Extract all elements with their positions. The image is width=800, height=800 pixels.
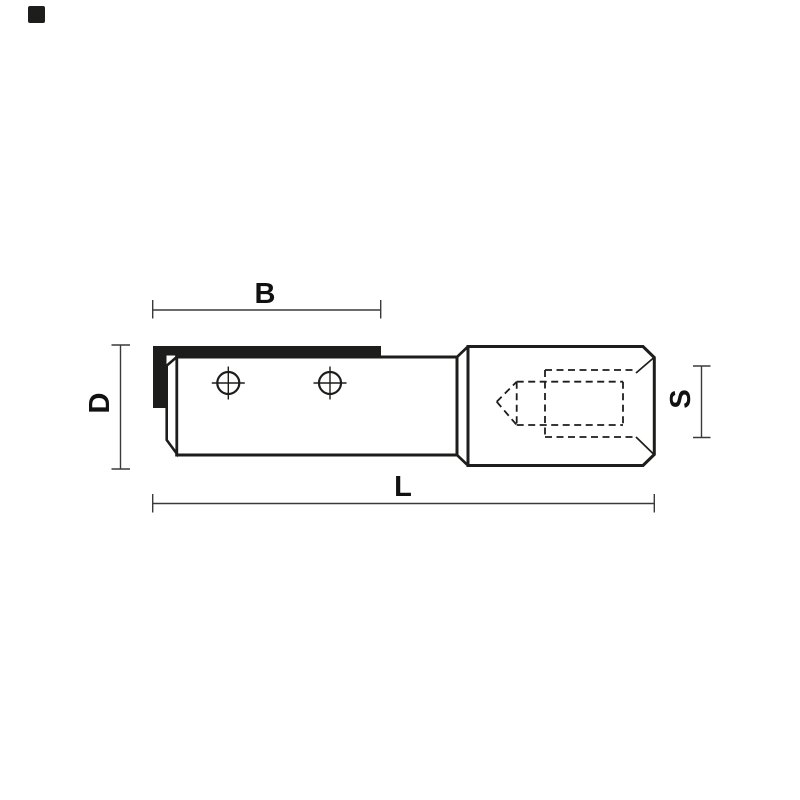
shank-body (468, 347, 654, 466)
neck-bottom-line (457, 455, 468, 466)
cutter-body-bevel (167, 357, 177, 454)
logo-mark (28, 6, 45, 23)
dimension-d: D (84, 345, 130, 469)
dimension-b: B (153, 278, 381, 319)
dim-b-label: B (255, 278, 276, 310)
drawing-canvas: B (0, 0, 800, 800)
dimension-l: L (153, 471, 655, 513)
dimension-s: S (665, 366, 711, 438)
dim-d-label: D (84, 393, 116, 414)
neck-transition (457, 347, 468, 466)
dim-l-label: L (394, 471, 412, 503)
cutter-head (153, 346, 457, 455)
shank (468, 347, 654, 466)
dim-s-label: S (665, 389, 697, 408)
neck-top-line (457, 347, 468, 358)
technical-drawing: B (0, 0, 800, 800)
cutter-body (177, 357, 457, 455)
